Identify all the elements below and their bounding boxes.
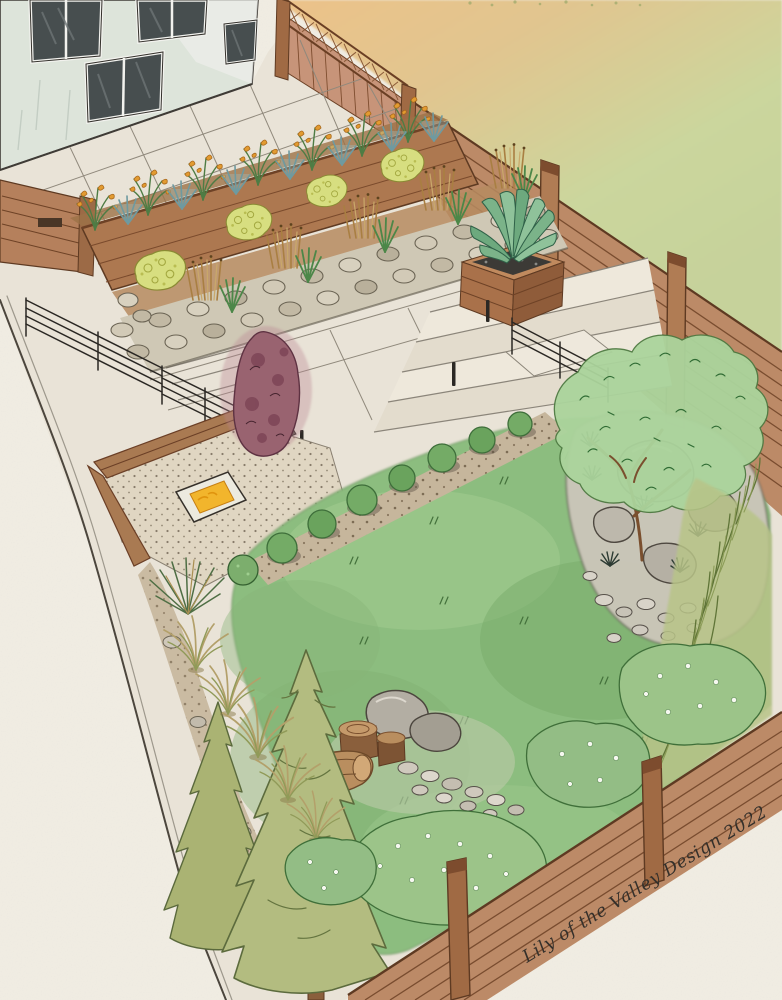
painting-canvas: Lily of the Valley Design 2022 [0,0,782,1000]
gate-handle-slot [38,218,62,227]
small-bush [228,555,258,585]
house-window [86,52,163,122]
house-window [30,0,102,62]
house-window [224,20,257,64]
flowering-shrub [285,838,376,905]
house-window [137,0,207,42]
tree-canopy [554,335,767,512]
fence-post [447,858,470,1000]
flowering-shrub [527,721,650,807]
flowering-shrub [619,644,765,745]
fence-post [275,0,290,80]
watercolor-garden-rendering: Lily of the Valley Design 2022 [0,0,782,1000]
